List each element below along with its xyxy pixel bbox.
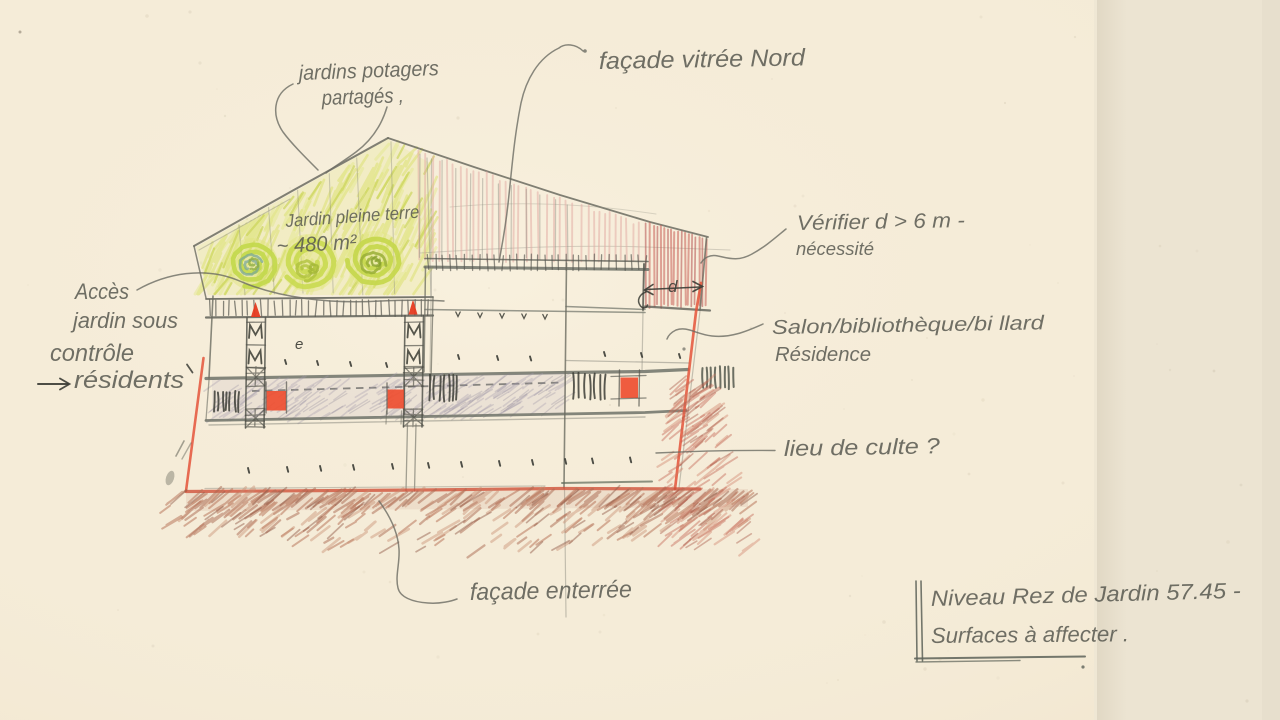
svg-text:d: d	[668, 277, 678, 296]
svg-text:Surfaces à affecter .: Surfaces à affecter .	[931, 621, 1129, 648]
svg-text:lieu de culte ?: lieu de culte ?	[784, 433, 941, 461]
svg-text:Résidence: Résidence	[775, 344, 871, 366]
svg-text:résidents: résidents	[74, 367, 184, 394]
svg-text:e: e	[295, 336, 303, 353]
svg-text:~ 480 m²: ~ 480 m²	[276, 231, 358, 258]
svg-text:contrôle: contrôle	[50, 340, 134, 367]
svg-text:Accès: Accès	[73, 279, 129, 304]
svg-text:façade vitrée Nord: façade vitrée Nord	[599, 44, 806, 75]
svg-text:nécessité: nécessité	[796, 239, 874, 259]
svg-text:Vérifier d > 6 m -: Vérifier d > 6 m -	[797, 209, 965, 235]
svg-text:façade enterrée: façade enterrée	[470, 576, 632, 606]
svg-text:jardin sous: jardin sous	[70, 308, 178, 333]
svg-text:partagés ,: partagés ,	[320, 84, 404, 110]
